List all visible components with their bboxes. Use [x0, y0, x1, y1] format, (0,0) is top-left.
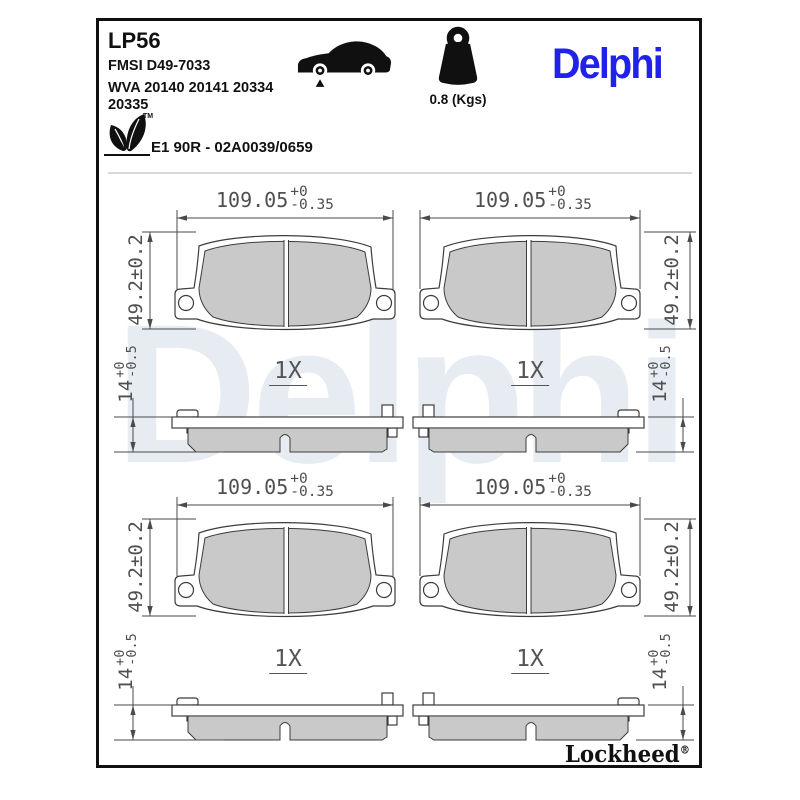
pad-front-top-right	[420, 236, 640, 330]
thickness-nominal: 14	[651, 380, 670, 403]
quantity-label-top-left: 1X	[269, 358, 307, 386]
weight-value: 0.8 (Kgs)	[420, 92, 496, 107]
width-nominal: 109.05	[216, 477, 288, 497]
height-dim-text-bottom-left: 49.2±0.2	[125, 521, 147, 613]
thickness-tol-minus: -0.5	[660, 633, 672, 666]
quantity-label-bottom-right: 1X	[511, 646, 549, 674]
homologation-number: E1 90R - 02A0039/0659	[151, 139, 313, 156]
wva-numbers-line1: WVA 20140 20141 20334	[108, 80, 273, 96]
width-tol-minus: -0.35	[548, 199, 592, 212]
pad-side-bottom-left	[172, 693, 403, 740]
width-tol-minus: -0.35	[548, 486, 592, 499]
width-tol-minus: -0.35	[290, 486, 334, 499]
quantity-label-bottom-left: 1X	[269, 646, 307, 674]
thickness-nominal: 14	[117, 668, 136, 691]
leaf-axle-letter: N	[119, 141, 126, 152]
width-nominal: 109.05	[474, 190, 546, 210]
thickness-dim-text-top-right: 14 +0-0.5	[646, 345, 670, 402]
leaf-trademark: TM	[143, 113, 153, 120]
pad-side-top-right	[413, 405, 644, 452]
width-nominal: 109.05	[474, 477, 546, 497]
width-dim-text-top-left: 109.05 +0-0.35	[216, 184, 334, 210]
thickness-dim-bottom-right	[636, 686, 694, 740]
height-dim-text-bottom-right: 49.2±0.2	[661, 521, 683, 613]
thickness-nominal: 14	[117, 380, 136, 403]
delphi-logo: Delphi	[552, 40, 662, 89]
pad-front-bottom-left	[175, 523, 395, 617]
width-nominal: 109.05	[216, 190, 288, 210]
thickness-dim-text-top-left: 14 +0-0.5	[112, 345, 136, 402]
lockheed-logo: Lockheed®	[513, 741, 690, 768]
leaf-underline	[104, 154, 150, 156]
thickness-dim-text-bottom-right: 14 +0-0.5	[646, 633, 670, 690]
width-dim-text-bottom-right: 109.05 +0-0.35	[474, 471, 592, 497]
thickness-dim-text-bottom-left: 14 +0-0.5	[112, 633, 136, 690]
quantity-label-top-right: 1X	[511, 358, 549, 386]
thickness-nominal: 14	[651, 668, 670, 691]
thickness-tol-minus: -0.5	[660, 345, 672, 378]
thickness-dim-top-right	[636, 398, 694, 452]
lockheed-wordmark: Lockheed	[565, 741, 680, 768]
width-tol-minus: -0.35	[290, 199, 334, 212]
registered-mark: ®	[680, 743, 690, 756]
pad-side-top-left	[172, 405, 403, 452]
thickness-tol-minus: -0.5	[126, 633, 138, 666]
front-axle-arrow-icon	[316, 79, 325, 87]
weight-icon	[432, 26, 484, 90]
car-side-icon	[297, 31, 393, 89]
pad-front-top-left	[175, 236, 395, 330]
pad-front-bottom-right	[420, 523, 640, 617]
fmsi-number: FMSI D49-7033	[108, 58, 210, 74]
part-number: LP56	[108, 28, 161, 54]
brake-pad-datasheet: Delphi LP56 FMSI D49-7033 WVA 20140 2014…	[0, 0, 800, 800]
width-dim-text-top-right: 109.05 +0-0.35	[474, 184, 592, 210]
width-dim-text-bottom-left: 109.05 +0-0.35	[216, 471, 334, 497]
pad-side-bottom-right	[413, 693, 644, 740]
height-dim-text-top-right: 49.2±0.2	[661, 234, 683, 326]
thickness-tol-minus: -0.5	[126, 345, 138, 378]
height-dim-text-top-left: 49.2±0.2	[125, 234, 147, 326]
